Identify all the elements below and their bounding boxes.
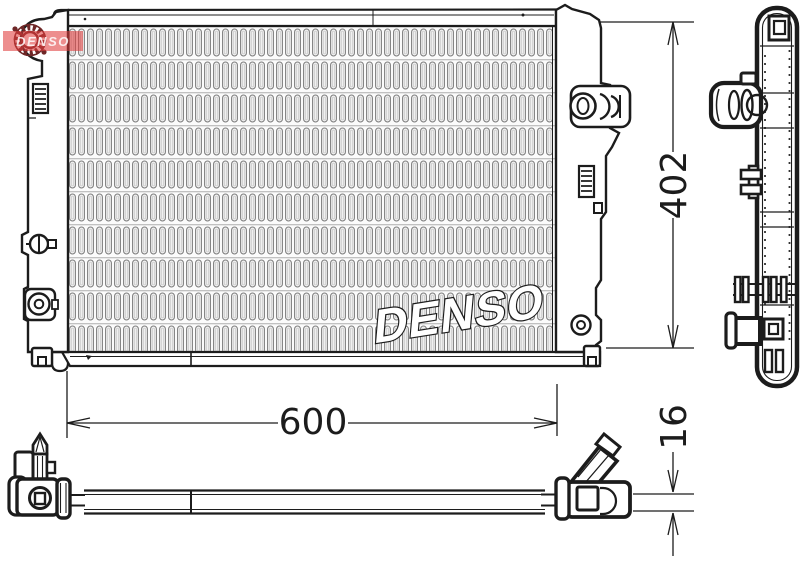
- fitting-circle-right: [572, 316, 591, 335]
- dimension-width: 600: [67, 371, 557, 443]
- front-view: DENSO DENSO: [3, 5, 630, 371]
- watermark-text: DENSO: [16, 34, 70, 49]
- side-bottom-slot: [765, 350, 772, 372]
- connector-right: [579, 166, 594, 197]
- rivet-dot: [84, 18, 87, 21]
- left-tank: [12, 10, 68, 366]
- rivet-dot: [522, 14, 525, 17]
- dimension-thickness: 16: [633, 404, 695, 556]
- bottom-view: [9, 434, 630, 519]
- bottom-header: [52, 352, 600, 371]
- dimension-height-label: 402: [654, 151, 695, 220]
- watermark: DENSO: [3, 31, 83, 51]
- bottom-core-bar: [84, 491, 545, 514]
- side-bottom-slot: [776, 350, 783, 372]
- inlet-port: [571, 86, 631, 127]
- side-view: [711, 8, 797, 386]
- side-step: [594, 203, 602, 213]
- top-header: [54, 10, 556, 27]
- dimension-thickness-label: 16: [654, 404, 695, 450]
- bottom-right-fitting: [541, 434, 630, 519]
- bottom-left-fitting: [9, 434, 85, 518]
- fitting-circle-left: [25, 289, 58, 320]
- dimension-width-label: 600: [279, 402, 348, 443]
- side-clip: [741, 166, 761, 198]
- dimension-height: 402: [599, 22, 695, 348]
- right-tank: [556, 5, 630, 366]
- side-ribbed-fitting: [733, 277, 796, 302]
- radiator-technical-drawing: DENSO DENSO: [0, 0, 800, 561]
